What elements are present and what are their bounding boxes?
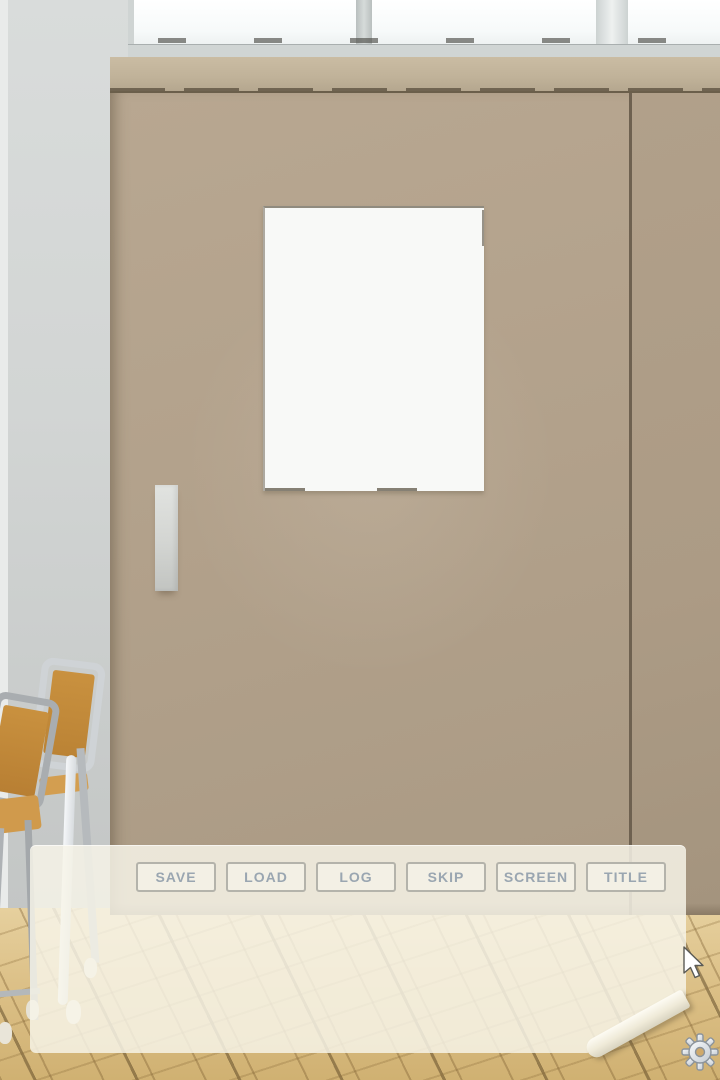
sliding-door-right-panel [632, 93, 720, 915]
game-screen: SAVE LOAD LOG SKIP SCREEN TITLE [0, 0, 720, 1080]
skip-button[interactable]: SKIP [406, 862, 486, 892]
save-button[interactable]: SAVE [136, 862, 216, 892]
door-handle [155, 485, 178, 591]
load-button[interactable]: LOAD [226, 862, 306, 892]
window-frame-dashes [158, 38, 718, 43]
gear-icon [681, 1033, 719, 1071]
chair-foot [0, 1022, 12, 1044]
screen-button[interactable]: SCREEN [496, 862, 576, 892]
transom-windows [128, 0, 720, 57]
door-top-rail [110, 57, 720, 93]
settings-button[interactable] [681, 1033, 719, 1071]
window-frame-bottom [128, 44, 720, 57]
door-panel-divider [629, 93, 632, 915]
log-button[interactable]: LOG [316, 862, 396, 892]
title-button[interactable]: TITLE [586, 862, 666, 892]
chair-seat-wood [0, 795, 42, 836]
quick-menu: SAVE LOAD LOG SKIP SCREEN TITLE [136, 862, 666, 892]
door-poster [263, 206, 484, 491]
